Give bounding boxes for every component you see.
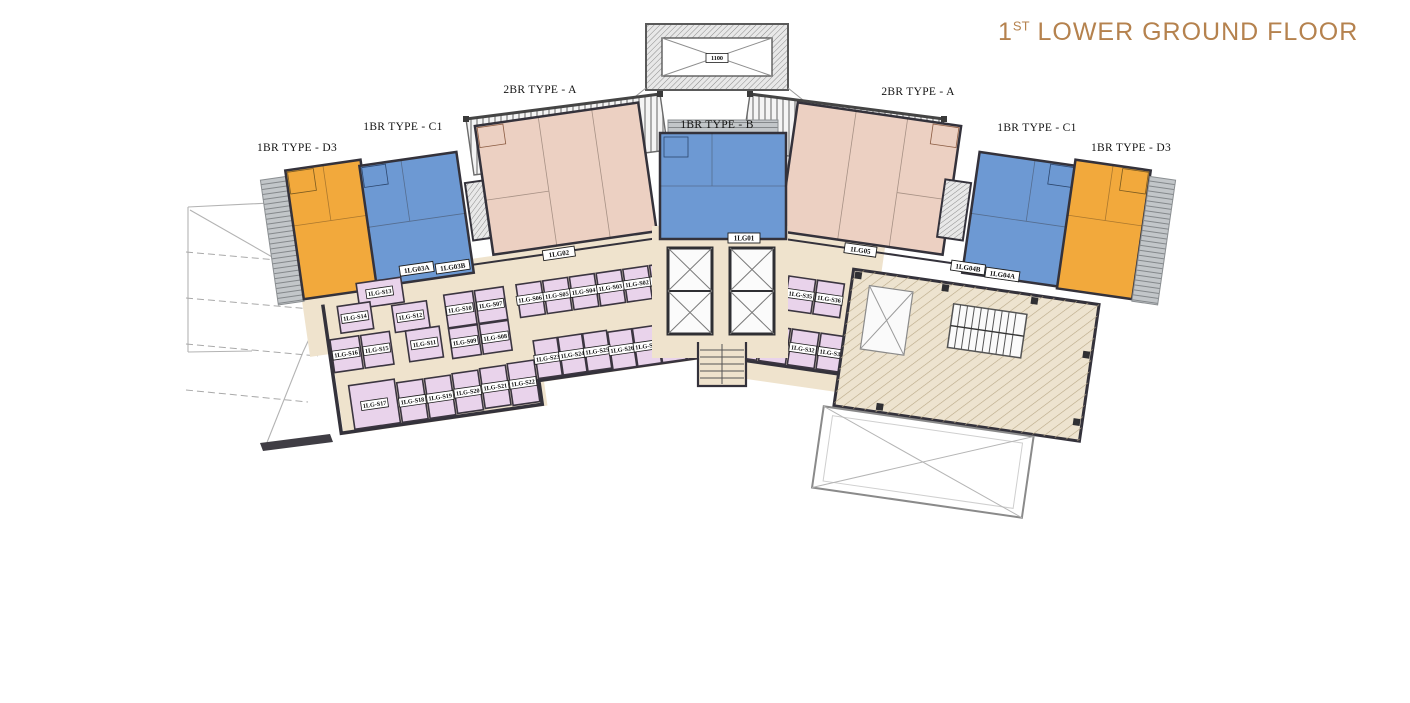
label-1br-d3-right: 1BR TYPE - D3 — [1066, 142, 1196, 154]
svg-text:1LG01: 1LG01 — [734, 235, 755, 243]
label-1br-b-center: 1BR TYPE - B — [652, 119, 782, 131]
centre-stair — [698, 342, 746, 386]
unit-2br-a-left — [475, 103, 657, 255]
floor-plan-page: 1100 — [0, 0, 1410, 703]
label-1br-d3-left: 1BR TYPE - D3 — [232, 142, 362, 154]
unit-1br-b-center — [660, 120, 786, 239]
unit-tag-center: 1LG01 — [728, 233, 760, 243]
label-1br-c1-left: 1BR TYPE - C1 — [338, 121, 468, 133]
elevator-shaft-left — [668, 248, 712, 334]
title-text: LOWER GROUND FLOOR — [1030, 18, 1359, 46]
label-1br-c1-right: 1BR TYPE - C1 — [972, 122, 1102, 134]
label-2br-a-left: 2BR TYPE - A — [475, 84, 605, 96]
label-2br-a-right: 2BR TYPE - A — [853, 86, 983, 98]
retaining-wall — [260, 434, 333, 451]
floor-plan-drawing: 1100 — [0, 0, 1410, 703]
unit-2br-a-right — [779, 103, 961, 255]
title-ordinal: ST — [1013, 19, 1030, 34]
shaft-dimension-tag: 1100 — [706, 54, 728, 63]
svg-text:1100: 1100 — [711, 55, 723, 62]
title-number: 1 — [998, 18, 1013, 46]
page-title: 1ST LOWER GROUND FLOOR — [998, 18, 1398, 47]
elevator-shaft-right — [730, 248, 774, 334]
service-stair — [947, 304, 1027, 358]
centre-core: 1LG01 — [652, 120, 788, 386]
